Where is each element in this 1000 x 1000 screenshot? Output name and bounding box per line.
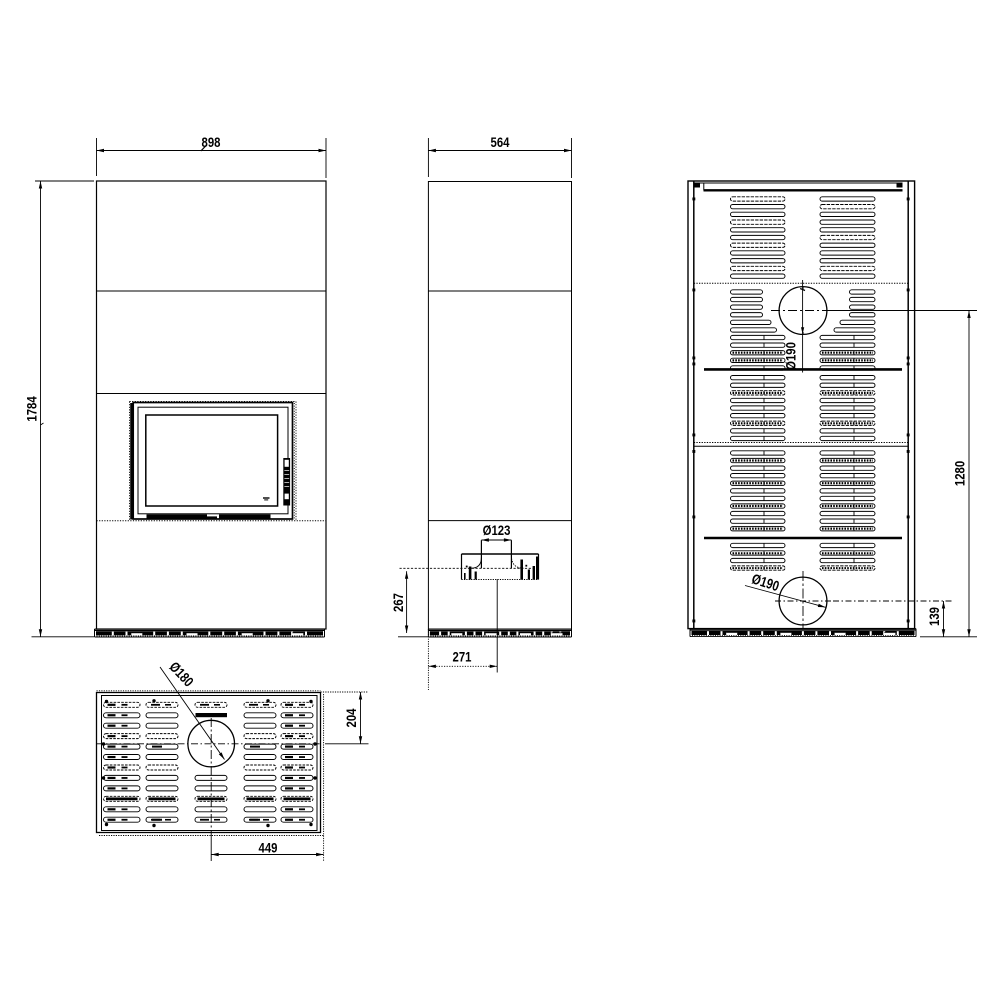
svg-text:271: 271	[453, 648, 472, 665]
svg-text:267: 267	[390, 593, 407, 612]
svg-text:449: 449	[259, 839, 278, 856]
svg-text:Ø123: Ø123	[483, 522, 511, 539]
svg-text:564: 564	[491, 134, 511, 151]
svg-text:Ø190: Ø190	[782, 342, 799, 370]
svg-text:1784: 1784	[23, 396, 40, 422]
svg-text:204: 204	[343, 708, 360, 728]
svg-text:139: 139	[926, 607, 943, 626]
svg-text:1280: 1280	[951, 461, 968, 486]
